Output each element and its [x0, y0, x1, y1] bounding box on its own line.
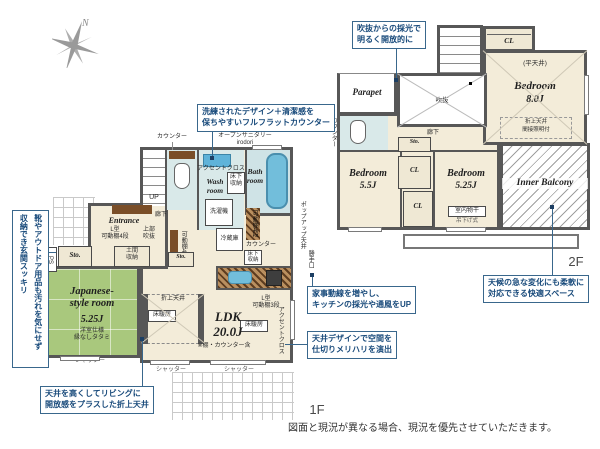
ldk-label: LDK 20.0J — [200, 310, 256, 340]
compass-rose-icon: N — [52, 14, 100, 68]
bedroom55-name: Bedroom — [340, 168, 396, 180]
storage-2f-label: Sto. — [398, 139, 431, 146]
window — [446, 227, 486, 232]
leader-line — [142, 340, 143, 386]
bedroom55-size: 5.5J — [340, 181, 396, 192]
closet-rod — [487, 34, 531, 35]
leader-line — [285, 344, 307, 345]
callout-void-light: 吹抜からの採光で 明るく開放的に — [352, 21, 426, 49]
shutter-label-2: シャッター — [148, 367, 194, 374]
toilet-counter — [169, 151, 195, 159]
callout-weather: 天候の急な変化にも柔軟に 対応できる快適スペース — [483, 275, 589, 303]
popup-ceiling-label: ポップアップ天井 — [298, 194, 305, 256]
washing-machine-label: 洗濯機 — [205, 209, 233, 216]
indoor-drying-sub: 吊下げ式 — [448, 218, 486, 225]
coffered-ceiling-label: 折上天井 — [150, 296, 196, 303]
leader-dot — [210, 156, 214, 160]
leader-line — [396, 49, 397, 79]
storage-entrance-label: Sto. — [58, 251, 92, 259]
japanese-room-note: 洋室仕様 縁なしタタミ — [57, 328, 127, 342]
bedroom8-ceiling-note: (平天井) — [505, 60, 565, 68]
bathtub-icon — [266, 153, 288, 209]
floor2-label: 2F — [558, 254, 594, 270]
bedroom525-name: Bedroom — [436, 168, 496, 180]
leader-dot — [310, 273, 314, 277]
floor1-label: 1F — [302, 402, 332, 418]
upper-void-label: 上部 吹抜 — [134, 227, 164, 240]
l-shelf4-label: L型 可動棚4段 — [94, 227, 136, 240]
leader-line — [172, 142, 173, 150]
stairs-2f — [440, 28, 480, 78]
counter-top-label: カウンター — [150, 134, 194, 141]
window — [60, 356, 100, 361]
up-label: UP — [142, 194, 166, 202]
leader-line — [212, 132, 213, 156]
window — [252, 145, 282, 150]
ldk-note: ※棚・カウンター含 — [188, 343, 260, 350]
leader-line — [312, 277, 313, 286]
parapet-label: Parapet — [339, 87, 395, 97]
leader-dot — [550, 205, 554, 209]
closet-top-label: CL — [483, 37, 535, 46]
callout-housework: 家事動線を増やし、 キッチンの採光や通風をUP — [307, 286, 416, 314]
pantry-shelf-label: 可動棚4段 — [250, 206, 257, 242]
callout-ceiling-design: 天井デザインで空間を 仕切りメリハリを演出 — [307, 331, 397, 359]
inner-balcony-label: Inner Balcony — [502, 178, 588, 189]
leader-line — [552, 208, 553, 275]
window — [210, 360, 266, 365]
closet-b-label: CL — [403, 202, 433, 210]
underfloor-storage-kitchen-label: 床下 収納 — [244, 251, 262, 263]
leader-dot — [140, 337, 144, 341]
doma-storage-label: 土間 収納 — [114, 248, 150, 262]
disclaimer-text: 図面と現況が異なる場合、現況を優先させていただきます。 — [288, 423, 598, 435]
accent-cloth-v-label: アクセントクロス — [276, 302, 283, 358]
callout-genkan: 靴やアウトドア用品も汚れを気にせず 収納でき玄関スッキリ — [12, 210, 49, 368]
wall — [433, 150, 500, 152]
entrance-shelf — [112, 205, 152, 214]
stove-icon — [266, 270, 282, 286]
bath-room-label: Bath room — [242, 168, 268, 185]
accent-cloth-label: アクセントクロス — [196, 166, 246, 173]
floorplan-canvas: N N 床下 収納 洗濯機 アクセントクロス Wash room Bath ro… — [0, 0, 600, 449]
callout-flat-counter: 洗練されたデザイン＋清潔感を 保ちやすいフルフラットカウンター — [197, 104, 335, 132]
toilet-icon — [174, 163, 190, 189]
japanese-room-size: 5.25J — [49, 314, 135, 326]
window — [348, 227, 382, 232]
wall — [433, 152, 435, 230]
kitchen-sink-icon — [228, 271, 252, 284]
bedroom8-name: Bedroom — [505, 80, 565, 93]
entrance-label: Entrance — [92, 216, 156, 225]
indoor-drying-label: 室内物干 — [448, 208, 486, 215]
dn-dot — [469, 82, 472, 85]
shutter-label-3: シャッター — [216, 367, 262, 374]
japanese-room — [45, 266, 140, 358]
closet-a-label: CL — [398, 166, 431, 174]
leader-dot — [394, 78, 398, 82]
japanese-room-name: Japanese- style room — [49, 286, 135, 310]
toilet-icon-2f — [350, 120, 366, 144]
svg-text:N: N — [81, 18, 90, 29]
callout-coffered-living: 天井を高くしてリビングに 開放感をプラスした折上天井 — [40, 386, 154, 414]
bedroom525-size: 5.25J — [436, 181, 496, 192]
wash-room-label: Wash room — [198, 178, 232, 195]
window — [290, 300, 295, 340]
window — [150, 360, 190, 365]
terrace — [172, 372, 294, 420]
storage-hall-label: Sto. — [168, 254, 194, 261]
backdoor-label: 勝手口 — [306, 246, 313, 272]
window — [584, 75, 589, 115]
kitchen-counter-label: カウンター — [238, 242, 284, 249]
